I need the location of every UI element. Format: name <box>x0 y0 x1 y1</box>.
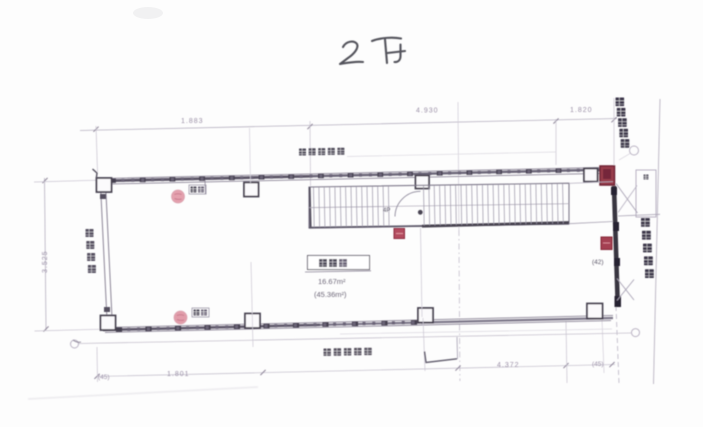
svg-text:(45): (45) <box>592 361 604 368</box>
svg-text:(45): (45) <box>98 374 110 381</box>
svg-text:(45.36m²): (45.36m²) <box>314 290 347 299</box>
svg-text:4.372: 4.372 <box>497 362 520 369</box>
svg-text:4.930: 4.930 <box>416 108 439 115</box>
svg-text:4P: 4P <box>383 208 390 214</box>
svg-text:1.883: 1.883 <box>181 118 204 125</box>
svg-text:(42): (42) <box>592 259 604 266</box>
svg-text:3.525: 3.525 <box>42 250 49 273</box>
svg-text:16.67m²: 16.67m² <box>318 277 346 286</box>
svg-text:1.801: 1.801 <box>167 371 190 378</box>
svg-text:1.820: 1.820 <box>570 107 593 114</box>
